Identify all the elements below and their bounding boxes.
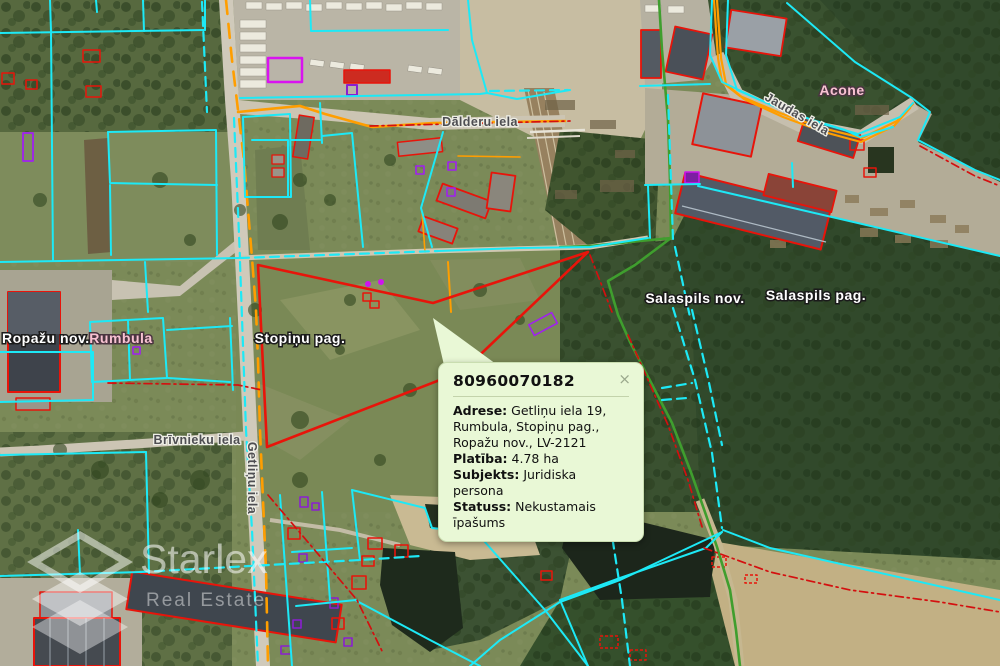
field-label-address: Adrese: bbox=[453, 403, 507, 418]
settlement-label-acone: Acone bbox=[819, 82, 864, 98]
magenta-warehouse bbox=[268, 58, 302, 82]
popup-body: Adrese: Getliņu iela 19, Rumbula, Stopiņ… bbox=[453, 403, 629, 531]
map-canvas[interactable]: Dālderu iela Jaudas iela Brīvnieku iela … bbox=[0, 0, 1000, 666]
field-label-subject: Subjekts: bbox=[453, 467, 519, 482]
field-label-area: Platība: bbox=[453, 451, 508, 466]
parish-label-stopinu: Stopiņu pag. bbox=[255, 330, 346, 346]
field-value-area: 4.78 ha bbox=[512, 451, 559, 466]
municipality-label-salaspils: Salaspils nov. bbox=[645, 290, 744, 306]
parish-label-salaspils: Salaspils pag. bbox=[766, 287, 866, 303]
cadastre-map-app: Dālderu iela Jaudas iela Brīvnieku iela … bbox=[0, 0, 1000, 666]
parcel-info-popup: 80960070182 × Adrese: Getliņu iela 19, R… bbox=[438, 362, 644, 542]
street-label-brivnieku: Brīvnieku iela bbox=[154, 433, 242, 447]
popup-title: 80960070182 bbox=[453, 370, 614, 390]
street-label-dalderu: Dālderu iela bbox=[442, 115, 518, 129]
settlement-label-rumbula: Rumbula bbox=[89, 330, 152, 346]
field-label-status: Statuss: bbox=[453, 499, 511, 514]
street-label-getlinu: Getliņu iela bbox=[245, 442, 259, 515]
popup-divider bbox=[453, 396, 629, 397]
red-truck bbox=[344, 70, 390, 83]
close-icon[interactable]: × bbox=[614, 370, 635, 388]
municipality-label-ropazu: Ropažu nov. bbox=[2, 330, 90, 346]
